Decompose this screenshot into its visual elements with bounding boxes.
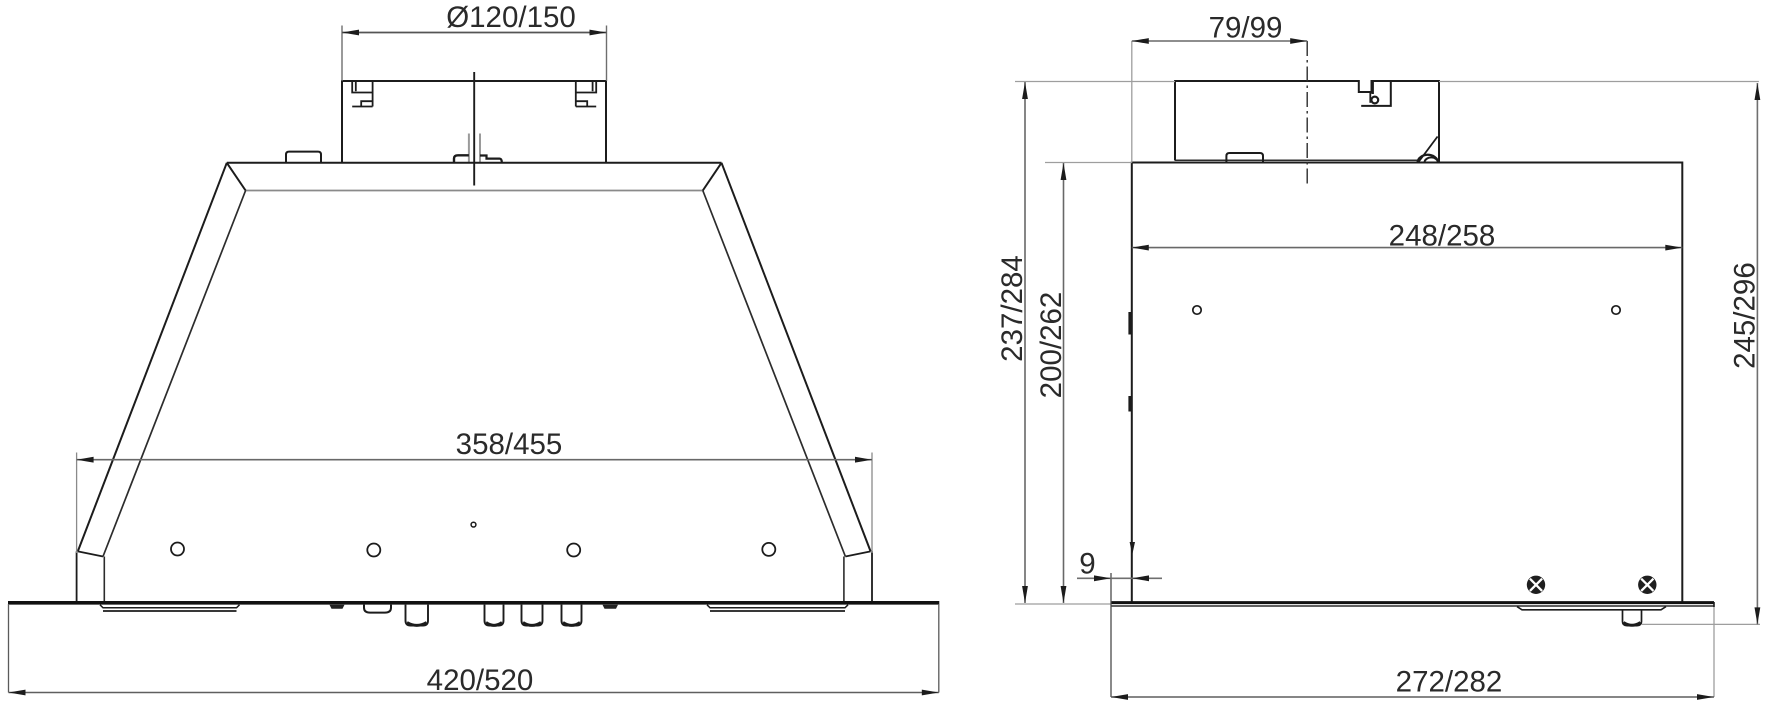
svg-text:358/455: 358/455: [456, 428, 563, 461]
svg-text:248/258: 248/258: [1389, 220, 1496, 253]
svg-text:420/520: 420/520: [427, 664, 534, 697]
svg-text:200/262: 200/262: [1035, 292, 1068, 399]
svg-text:237/284: 237/284: [996, 255, 1029, 362]
svg-text:79/99: 79/99: [1209, 12, 1283, 45]
svg-text:9: 9: [1079, 548, 1095, 581]
svg-text:245/296: 245/296: [1729, 262, 1762, 369]
svg-text:Ø120/150: Ø120/150: [446, 1, 576, 34]
svg-text:272/282: 272/282: [1396, 666, 1503, 699]
